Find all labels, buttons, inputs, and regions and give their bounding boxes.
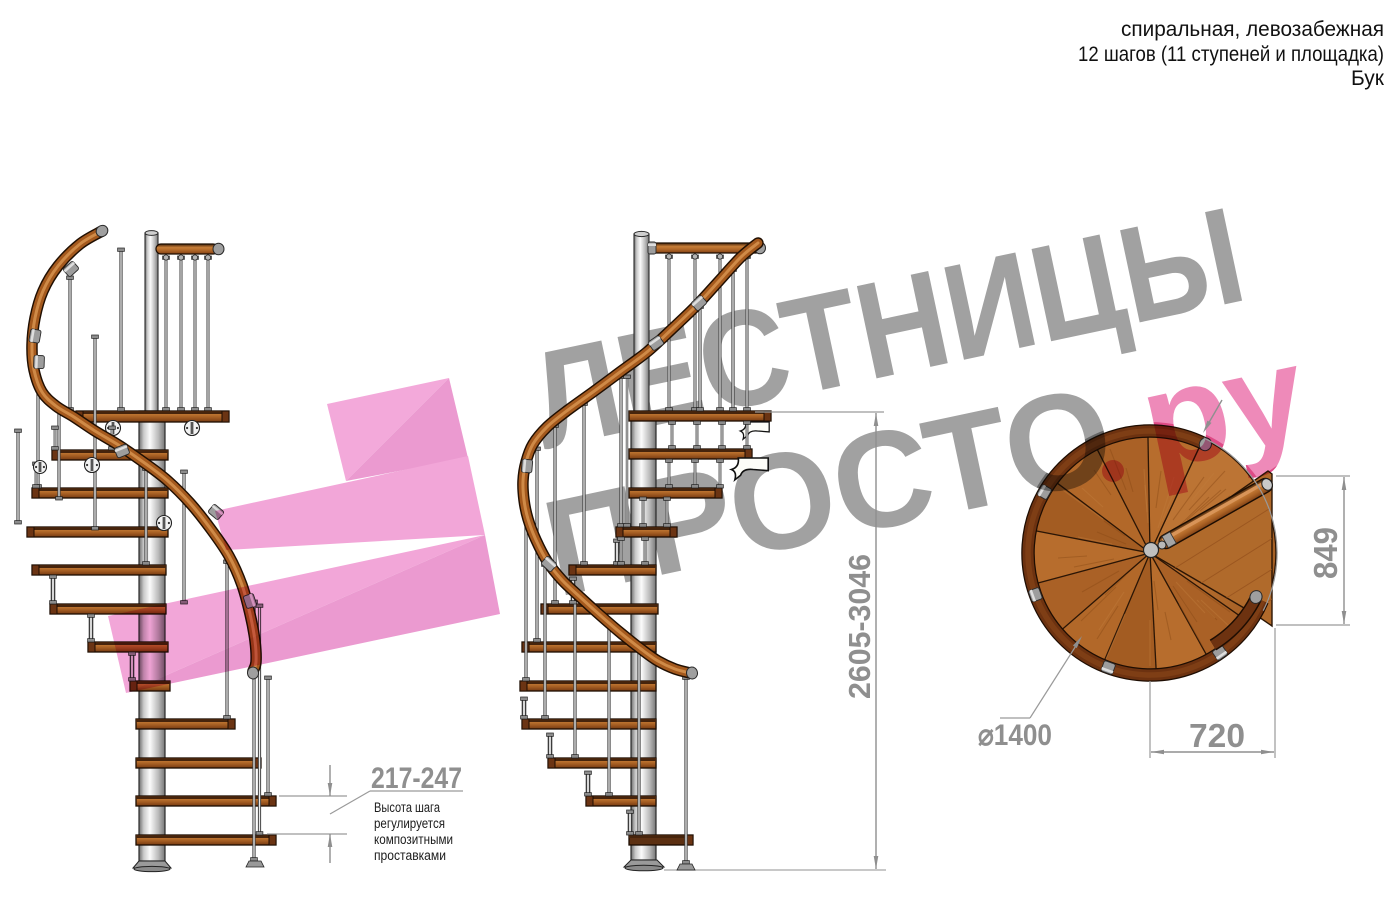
svg-text:композитными: композитными bbox=[374, 832, 453, 847]
svg-text:217-247: 217-247 bbox=[371, 762, 462, 795]
svg-text:спиральная, левозабежная: спиральная, левозабежная bbox=[1121, 18, 1384, 41]
svg-text:2605-3046: 2605-3046 bbox=[842, 554, 877, 699]
svg-text:849: 849 bbox=[1307, 527, 1344, 579]
svg-text:проставками: проставками bbox=[374, 848, 446, 863]
svg-text:720: 720 bbox=[1189, 717, 1245, 754]
svg-text:Бук: Бук bbox=[1351, 67, 1385, 90]
svg-text:Высота шага: Высота шага bbox=[374, 800, 440, 815]
svg-text:регулируется: регулируется bbox=[374, 816, 445, 831]
svg-text:⌀1400: ⌀1400 bbox=[978, 719, 1052, 752]
svg-text:12 шагов (11 ступеней и площад: 12 шагов (11 ступеней и площадка) bbox=[1078, 43, 1384, 66]
